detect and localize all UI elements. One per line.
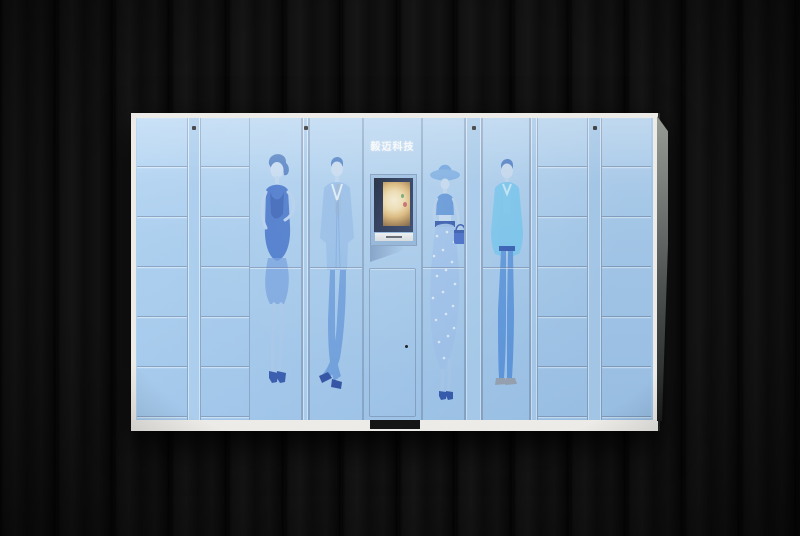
locker-column-small-2	[201, 118, 249, 420]
figure-woman-with-hat-illustration	[423, 118, 465, 420]
parcel-locker-cabinet: 毅迈科技	[131, 113, 658, 431]
cabinet-side-panel	[657, 116, 668, 421]
lock-icon	[472, 126, 476, 130]
locker-column-small-4	[602, 118, 651, 420]
display-red-detail	[403, 202, 407, 207]
lock-icon	[192, 126, 196, 130]
lock-icon	[304, 126, 308, 130]
door-panel-woman-dress	[249, 118, 302, 420]
keyhole-icon	[405, 345, 408, 348]
lock-strip-1	[187, 118, 201, 420]
cabinet-front: 毅迈科技	[136, 118, 653, 420]
door-panel-man-casual	[482, 118, 530, 420]
keypad-ledge	[375, 233, 413, 241]
lock-strip-3	[465, 118, 482, 420]
door-panel-woman-hat	[422, 118, 465, 420]
console-lower-door	[369, 268, 416, 417]
kiosk-display	[383, 182, 410, 226]
figure-woman-in-dress-illustration	[250, 118, 302, 420]
door-panel-man-suit	[309, 118, 363, 420]
lock-strip-2	[302, 118, 309, 420]
console-column: 毅迈科技	[363, 118, 422, 420]
screen-bezel	[374, 178, 413, 232]
lock-strip-5	[587, 118, 602, 420]
locker-column-small-1	[137, 118, 187, 420]
brand-logo-text: 毅迈科技	[364, 138, 421, 153]
locker-column-small-3	[538, 118, 587, 420]
cabinet-base-recess	[370, 420, 420, 429]
figure-man-in-suit-illustration	[310, 118, 363, 420]
display-green-detail	[401, 194, 404, 198]
kiosk-screen-unit	[370, 174, 417, 246]
figure-man-casual-illustration	[483, 118, 530, 420]
card-slot	[386, 236, 401, 238]
lock-icon	[593, 126, 597, 130]
dark-wood-wall: 毅迈科技	[0, 0, 800, 536]
lock-strip-4	[530, 118, 538, 420]
product-photo: { "brand": { "label": "毅迈科技" }, "colors"…	[0, 0, 800, 536]
screen-shadow	[370, 246, 417, 262]
